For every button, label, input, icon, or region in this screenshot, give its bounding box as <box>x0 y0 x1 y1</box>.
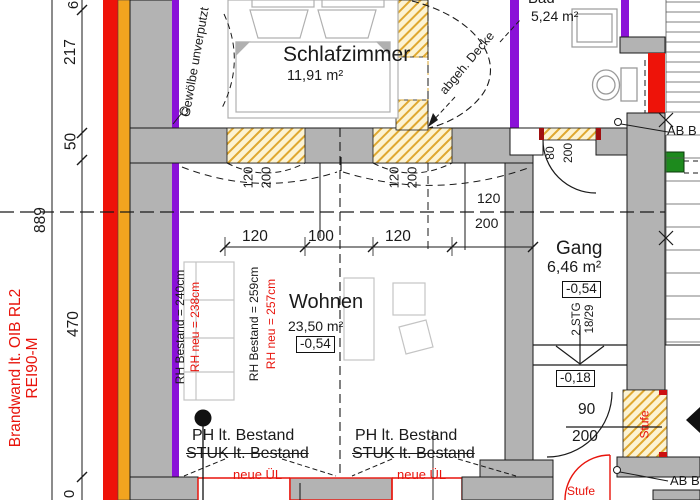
opening-width: 120 <box>477 191 500 206</box>
dim-seg-470: 470 <box>66 304 82 344</box>
stufe-door-height: 200 <box>572 428 598 445</box>
dim-span-120b: 120 <box>385 228 411 245</box>
dim-seg-50: 50 <box>64 127 79 157</box>
ph-note-left: PH lt. Bestand <box>192 427 294 445</box>
washbasin <box>572 9 617 47</box>
north-arrow <box>686 407 700 433</box>
stuk-note-right: STUK lt. Bestand <box>352 445 475 463</box>
dim-span-100: 100 <box>308 228 334 245</box>
toilet <box>593 68 638 101</box>
stuk-note-left: STUK lt. Bestand <box>186 445 309 463</box>
ab-note-bottom: AB B <box>670 474 700 488</box>
win2-height: 200 <box>407 161 420 195</box>
divider-wall <box>130 128 533 163</box>
rh1-neu: RH neu = 238cm <box>190 262 202 392</box>
bad-door-height: 200 <box>563 136 575 170</box>
stufe-note-hatch: Stufe <box>639 402 652 448</box>
room-area-wohnen: 23,50 m² <box>288 319 343 334</box>
rh2-bestand: RH Bestand = 259cm <box>249 259 261 389</box>
left-wall <box>103 0 179 500</box>
neue-ul-right: neue ÜL <box>397 468 446 482</box>
stair-size: 18/29 <box>584 302 597 335</box>
room-area-bad: 5,24 m² <box>531 9 578 24</box>
dim-span-120a: 120 <box>242 228 268 245</box>
room-area-schlafzimmer: 11,91 m² <box>287 69 343 85</box>
win2-width: 120 <box>389 161 402 195</box>
dim-total-889: 889 <box>33 200 49 240</box>
opening-height: 200 <box>475 216 498 231</box>
floor-plan: 6 217 50 889 470 0 Brandwand lt. OIB RL2… <box>0 0 700 500</box>
dim-seg-217: 217 <box>63 32 79 72</box>
room-area-gang: 6,46 m² <box>547 259 601 277</box>
ab-note-top: AB B <box>667 124 697 138</box>
level-landing: -0,18 <box>556 370 595 387</box>
gang-left-wall <box>480 163 553 500</box>
room-name-wohnen: Wohnen <box>289 291 363 313</box>
dim-seg-last: 0 <box>63 484 77 500</box>
ph-note-right: PH lt. Bestand <box>355 427 457 445</box>
brandwand-line2: REI90-M <box>24 289 41 448</box>
stufe-note-door: Stufe <box>567 485 595 498</box>
room-name-gang: Gang <box>556 239 602 260</box>
room-name-bad: Bad <box>528 0 555 8</box>
stair-count: 2 STG <box>571 302 584 335</box>
leader-arrow <box>428 113 438 127</box>
rh1-bestand: RH Bestand = 240cm <box>175 262 187 392</box>
stair-note: 2 STG 18/29 <box>571 294 597 344</box>
neue-ul-left: neue ÜL <box>233 468 282 482</box>
win1-height: 200 <box>261 161 274 195</box>
room-name-schlafzimmer: Schlafzimmer <box>283 43 410 66</box>
dim-seg-6: 6 <box>67 0 81 20</box>
level-wohnen: -0,54 <box>296 336 335 353</box>
win1-width: 120 <box>243 161 256 195</box>
brandwand-note: Brandwand lt. OIB RL2 REI90-M <box>6 248 42 488</box>
bad-door-width: 80 <box>545 138 557 168</box>
stufe-door-width: 90 <box>578 401 595 418</box>
rh2-neu: RH neu = 257cm <box>266 259 278 389</box>
brandwand-line1: Brandwand lt. OIB RL2 <box>7 289 24 448</box>
